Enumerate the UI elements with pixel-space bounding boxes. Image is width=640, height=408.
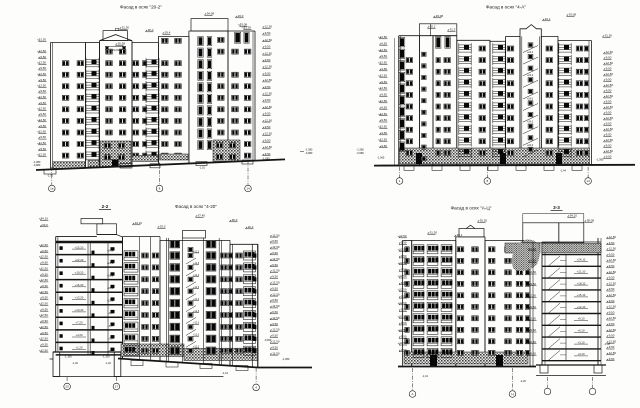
svg-text:+9,50: +9,50 <box>607 322 615 326</box>
svg-text:14: 14 <box>246 187 250 191</box>
svg-text:+9,50: +9,50 <box>607 276 615 280</box>
svg-text:-1,065: -1,065 <box>262 157 270 161</box>
svg-text:+12,50: +12,50 <box>37 153 46 157</box>
svg-text:+12,50: +12,50 <box>39 278 48 282</box>
svg-text:+12,50: +12,50 <box>398 288 407 292</box>
svg-text:+12,50: +12,50 <box>378 112 387 116</box>
svg-text:+24,0: +24,0 <box>527 74 534 77</box>
svg-text:+12,50: +12,50 <box>607 258 616 262</box>
svg-text:+21,10: +21,10 <box>577 270 586 274</box>
svg-text:+0,10: +0,10 <box>577 352 585 356</box>
svg-text:+12,50: +12,50 <box>271 281 280 285</box>
svg-text:+9,50: +9,50 <box>399 348 407 352</box>
svg-text:1в: 1в <box>50 187 54 191</box>
svg-text:+13,20: +13,20 <box>75 296 84 300</box>
svg-text:+9,50: +9,50 <box>604 155 612 159</box>
svg-text:+9,10: +9,10 <box>577 317 585 321</box>
svg-text:+12,50: +12,50 <box>271 233 280 237</box>
svg-text:+9,50: +9,50 <box>380 144 388 148</box>
svg-text:+35,25: +35,25 <box>478 219 487 223</box>
svg-text:+12,50: +12,50 <box>604 50 613 54</box>
svg-text:+9,50: +9,50 <box>271 310 279 314</box>
svg-text:А: А <box>411 392 413 396</box>
svg-text:+12,50: +12,50 <box>37 95 46 99</box>
svg-text:+12,50: +12,50 <box>607 305 616 309</box>
svg-text:+29,4: +29,4 <box>163 31 171 35</box>
svg-text:+31,30: +31,30 <box>603 34 612 38</box>
svg-text:+9,50: +9,50 <box>263 31 271 35</box>
svg-text:3-3: 3-3 <box>553 205 560 210</box>
svg-text:+12,50: +12,50 <box>39 313 48 317</box>
svg-text:-1,44: -1,44 <box>222 371 228 375</box>
svg-text:+9,50: +9,50 <box>39 124 47 128</box>
svg-text:+12,50: +12,50 <box>39 348 48 352</box>
svg-text:+31,3: +31,3 <box>448 28 456 32</box>
svg-text:+33,0: +33,0 <box>236 14 244 18</box>
svg-text:-0,980: -0,980 <box>33 163 41 167</box>
svg-text:+12,50: +12,50 <box>604 116 613 120</box>
svg-text:+12,50: +12,50 <box>39 302 48 306</box>
svg-text:+12,50: +12,50 <box>37 130 46 134</box>
svg-text:+12,50: +12,50 <box>604 149 613 153</box>
svg-text:+9,50: +9,50 <box>380 131 388 135</box>
svg-text:+12,50: +12,50 <box>271 328 280 332</box>
svg-text:+36,0: +36,0 <box>230 218 238 222</box>
svg-text:+30,1: +30,1 <box>455 233 463 237</box>
svg-text:2-2: 2-2 <box>102 204 109 209</box>
svg-text:+9,50: +9,50 <box>39 135 47 139</box>
svg-text:-1,44: -1,44 <box>422 374 428 378</box>
svg-text:+12,50: +12,50 <box>271 304 280 308</box>
svg-text:+24,82: +24,82 <box>111 48 120 52</box>
svg-text:+9,50: +9,50 <box>40 272 48 276</box>
svg-text:+12,50: +12,50 <box>37 118 46 122</box>
svg-text:+6,10: +6,10 <box>577 329 585 333</box>
svg-text:+9,50: +9,50 <box>380 54 388 58</box>
svg-text:+30,2: +30,2 <box>428 25 436 29</box>
svg-text:+12,50: +12,50 <box>398 274 407 278</box>
svg-text:+34,1: +34,1 <box>543 17 551 21</box>
svg-text:-1,44: -1,44 <box>560 169 566 173</box>
svg-text:+9,50: +9,50 <box>399 254 407 258</box>
svg-text:+12,50: +12,50 <box>37 84 46 88</box>
svg-text:+12,50: +12,50 <box>378 99 387 103</box>
svg-text:+19,20: +19,20 <box>75 270 84 274</box>
svg-text:+12,50: +12,50 <box>271 316 280 320</box>
svg-text:+31,30: +31,30 <box>428 231 437 235</box>
svg-text:+9,50: +9,50 <box>604 89 612 93</box>
svg-text:+25,20: +25,20 <box>75 245 84 249</box>
svg-text:+12,50: +12,50 <box>604 138 613 142</box>
svg-text:+12,50: +12,50 <box>607 293 616 297</box>
svg-text:+12,50: +12,50 <box>271 340 280 344</box>
svg-text:-1,40: -1,40 <box>72 361 78 365</box>
svg-text:-1,065: -1,065 <box>377 156 385 160</box>
svg-text:+12,50: +12,50 <box>271 269 280 273</box>
svg-text:+9,50: +9,50 <box>607 241 615 245</box>
svg-text:+12,50: +12,50 <box>398 261 407 265</box>
svg-text:+9,50: +9,50 <box>529 282 537 286</box>
svg-text:+30,0: +30,0 <box>146 28 154 32</box>
svg-text:Фасад в осях "4-А": Фасад в осях "4-А" <box>486 5 526 10</box>
svg-text:+12,50: +12,50 <box>39 325 48 329</box>
svg-text:+12,50: +12,50 <box>604 83 613 87</box>
svg-text:+9,50: +9,50 <box>604 133 612 137</box>
svg-text:+9,50: +9,50 <box>380 41 388 45</box>
svg-text:14: 14 <box>586 179 590 183</box>
svg-text:+9,50: +9,50 <box>607 287 615 291</box>
svg-text:Фасад в осях "4-20": Фасад в осях "4-20" <box>175 204 217 209</box>
svg-text:-0,950: -0,950 <box>264 338 272 342</box>
svg-text:+9,50: +9,50 <box>380 105 388 109</box>
svg-text:+12,50: +12,50 <box>604 105 613 109</box>
svg-text:+12,50: +12,50 <box>607 270 616 274</box>
svg-text:+12,50: +12,50 <box>39 290 48 294</box>
svg-text:+9,50: +9,50 <box>399 268 407 272</box>
svg-text:+12,50: +12,50 <box>607 351 616 355</box>
svg-text:+12,50: +12,50 <box>271 351 280 355</box>
svg-text:+12,50: +12,50 <box>37 72 46 76</box>
svg-text:+12,50: +12,50 <box>263 51 272 55</box>
svg-text:+38,08: +38,08 <box>585 219 594 223</box>
svg-text:+31,30: +31,30 <box>120 26 129 30</box>
svg-text:+9,50: +9,50 <box>604 67 612 71</box>
svg-text:+12,50: +12,50 <box>604 61 613 65</box>
svg-text:+24,0: +24,0 <box>527 51 534 54</box>
svg-text:+9,50: +9,50 <box>604 56 612 60</box>
svg-text:+9,50: +9,50 <box>604 111 612 115</box>
svg-text:+9,50: +9,50 <box>271 286 279 290</box>
svg-text:-2,20: -2,20 <box>520 379 526 383</box>
svg-text:+12,50: +12,50 <box>39 243 48 247</box>
svg-text:+12,50: +12,50 <box>607 247 616 251</box>
svg-text:+31,30: +31,30 <box>242 26 251 30</box>
svg-text:+33,0: +33,0 <box>40 223 48 227</box>
svg-text:+12,50: +12,50 <box>398 301 407 305</box>
svg-text:+12,50: +12,50 <box>527 317 536 321</box>
svg-text:+12,50: +12,50 <box>378 73 387 77</box>
svg-text:+26,58: +26,58 <box>116 42 125 46</box>
svg-text:+9,50: +9,50 <box>529 259 537 263</box>
svg-text:+12,50: +12,50 <box>604 94 613 98</box>
svg-text:-1,70: -1,70 <box>47 174 54 178</box>
svg-text:17: 17 <box>115 385 119 389</box>
svg-text:+9,50: +9,50 <box>40 343 48 347</box>
svg-text:+12,50: +12,50 <box>39 266 48 270</box>
svg-text:+12,50: +12,50 <box>607 235 616 239</box>
svg-text:+12,50: +12,50 <box>271 245 280 249</box>
svg-text:+12,50: +12,50 <box>263 25 272 29</box>
svg-text:+9,50: +9,50 <box>40 296 48 300</box>
svg-text:+9,50: +9,50 <box>40 261 48 265</box>
svg-text:+9,50: +9,50 <box>380 67 388 71</box>
svg-text:+9,50: +9,50 <box>399 335 407 339</box>
svg-text:+9,50: +9,50 <box>604 144 612 148</box>
svg-text:+24,0: +24,0 <box>527 121 534 124</box>
svg-text:+12,50: +12,50 <box>607 316 616 320</box>
svg-text:+9,50: +9,50 <box>271 334 279 338</box>
svg-text:+9,50: +9,50 <box>271 263 279 267</box>
svg-text:+9,50: +9,50 <box>263 138 271 142</box>
svg-text:+12,50: +12,50 <box>378 35 387 39</box>
svg-text:+9,50: +9,50 <box>40 319 48 323</box>
svg-text:+33,08: +33,08 <box>567 13 576 17</box>
svg-text:+12,50: +12,50 <box>37 141 46 145</box>
svg-text:+12,50: +12,50 <box>378 137 387 141</box>
svg-text:+12,50: +12,50 <box>271 257 280 261</box>
svg-text:+9,50: +9,50 <box>39 78 47 82</box>
svg-text:+9,50: +9,50 <box>40 307 48 311</box>
svg-text:+9,50: +9,50 <box>271 251 279 255</box>
svg-text:+34,08: +34,08 <box>205 12 214 16</box>
svg-text:+32,2: +32,2 <box>246 225 254 229</box>
svg-text:+9,50: +9,50 <box>529 305 537 309</box>
svg-text:+9,50: +9,50 <box>40 249 48 253</box>
svg-text:+9,50: +9,50 <box>39 55 47 59</box>
svg-text:+9,50: +9,50 <box>399 321 407 325</box>
svg-text:-1,380: -1,380 <box>356 148 364 152</box>
svg-text:+1,20: +1,20 <box>75 346 83 350</box>
svg-text:+12,50: +12,50 <box>604 127 613 131</box>
svg-text:+9,50: +9,50 <box>380 118 388 122</box>
svg-text:+24,0: +24,0 <box>527 144 534 147</box>
svg-text:+22,20: +22,20 <box>75 258 84 262</box>
svg-text:+12,50: +12,50 <box>607 328 616 332</box>
svg-text:+12,50: +12,50 <box>398 341 407 345</box>
svg-text:+37,45: +37,45 <box>196 214 205 218</box>
svg-text:+9,50: +9,50 <box>39 66 47 70</box>
svg-text:-1,01: -1,01 <box>199 166 206 170</box>
svg-text:+9,50: +9,50 <box>40 284 48 288</box>
svg-text:+9,50: +9,50 <box>399 294 407 298</box>
svg-text:+12,50: +12,50 <box>398 328 407 332</box>
svg-text:+9,50: +9,50 <box>39 89 47 93</box>
svg-text:+12,10: +12,10 <box>577 305 586 309</box>
svg-text:-1,100: -1,100 <box>102 355 110 359</box>
svg-text:20: 20 <box>65 385 69 389</box>
svg-text:+12,50: +12,50 <box>263 92 272 96</box>
svg-text:+12,50: +12,50 <box>271 292 280 296</box>
svg-text:+9,50: +9,50 <box>271 322 279 326</box>
svg-text:+9,50: +9,50 <box>271 298 279 302</box>
svg-text:+12,50: +12,50 <box>263 118 272 122</box>
svg-text:+15,10: +15,10 <box>577 293 586 297</box>
svg-text:+24,0: +24,0 <box>527 97 534 100</box>
svg-text:+34,10: +34,10 <box>133 221 142 225</box>
svg-text:-1,38: -1,38 <box>604 342 610 346</box>
svg-text:+12,50: +12,50 <box>263 105 272 109</box>
svg-text:+12,50: +12,50 <box>527 340 536 344</box>
svg-text:+31,30: +31,30 <box>37 38 46 42</box>
svg-text:+12,50: +12,50 <box>378 61 387 65</box>
svg-text:-1,380: -1,380 <box>596 157 604 161</box>
svg-text:-1,40: -1,40 <box>105 361 111 365</box>
svg-text:Фасад в осях "А-Ц": Фасад в осях "А-Ц" <box>451 206 492 211</box>
svg-text:+34,10: +34,10 <box>39 217 48 221</box>
svg-text:+9,50: +9,50 <box>380 93 388 97</box>
svg-text:+9,50: +9,50 <box>263 152 271 156</box>
svg-text:+9,50: +9,50 <box>263 58 271 62</box>
svg-text:+12,50: +12,50 <box>39 255 48 259</box>
svg-text:+9,50: +9,50 <box>380 80 388 84</box>
svg-text:+9,50: +9,50 <box>263 125 271 129</box>
svg-text:+9,50: +9,50 <box>607 357 615 361</box>
svg-text:+12,50: +12,50 <box>527 270 536 274</box>
svg-text:+9,50: +9,50 <box>399 241 407 245</box>
svg-text:+12,50: +12,50 <box>604 72 613 76</box>
svg-text:Фасад в осях "20-2": Фасад в осях "20-2" <box>120 5 162 10</box>
svg-text:+12,50: +12,50 <box>607 281 616 285</box>
svg-text:+9,50: +9,50 <box>529 351 537 355</box>
svg-text:+9,50: +9,50 <box>607 310 615 314</box>
svg-text:+9,50: +9,50 <box>40 331 48 335</box>
svg-text:+12,50: +12,50 <box>378 125 387 129</box>
svg-text:+9,50: +9,50 <box>271 275 279 279</box>
svg-text:+9,50: +9,50 <box>39 101 47 105</box>
svg-text:+9,50: +9,50 <box>604 78 612 82</box>
svg-text:+12,50: +12,50 <box>378 86 387 90</box>
svg-text:+12,50: +12,50 <box>37 61 46 65</box>
svg-text:+9,50: +9,50 <box>607 264 615 268</box>
svg-text:+33,08: +33,08 <box>434 14 443 18</box>
svg-text:-1,100: -1,100 <box>64 355 72 359</box>
svg-text:+9,50: +9,50 <box>607 334 615 338</box>
svg-text:+12,50: +12,50 <box>37 107 46 111</box>
svg-text:-1,380: -1,380 <box>305 148 313 152</box>
svg-text:+24,10: +24,10 <box>577 258 586 262</box>
svg-text:+12,50: +12,50 <box>263 38 272 42</box>
svg-text:+12,50: +12,50 <box>398 314 407 318</box>
svg-text:+12,50: +12,50 <box>37 49 46 53</box>
svg-text:+9,50: +9,50 <box>271 239 279 243</box>
svg-text:+12,50: +12,50 <box>527 293 536 297</box>
svg-text:+9,50: +9,50 <box>399 308 407 312</box>
svg-text:+12,50: +12,50 <box>378 48 387 52</box>
svg-text:-1,380: -1,380 <box>282 357 290 361</box>
svg-text:-0,980: -0,980 <box>356 151 364 155</box>
svg-text:+9,50: +9,50 <box>604 122 612 126</box>
svg-text:-0,980: -0,980 <box>305 151 313 155</box>
svg-text:+9,50: +9,50 <box>39 147 47 151</box>
svg-text:+9,50: +9,50 <box>607 299 615 303</box>
svg-text:+16,20: +16,20 <box>75 283 84 287</box>
svg-text:+9,50: +9,50 <box>263 45 271 49</box>
svg-text:+7,20: +7,20 <box>75 321 83 325</box>
svg-text:+33,0: +33,0 <box>158 225 166 229</box>
svg-text:+12,50: +12,50 <box>263 132 272 136</box>
svg-text:+12,50: +12,50 <box>263 65 272 69</box>
svg-text:+12,50: +12,50 <box>263 145 272 149</box>
svg-text:+12,50: +12,50 <box>398 247 407 251</box>
svg-text:+9,50: +9,50 <box>604 100 612 104</box>
svg-text:+9,50: +9,50 <box>271 345 279 349</box>
svg-text:+34,10: +34,10 <box>568 214 577 218</box>
svg-text:+9,50: +9,50 <box>263 71 271 75</box>
svg-text:+3,10: +3,10 <box>577 340 585 344</box>
svg-text:+9,50: +9,50 <box>399 281 407 285</box>
svg-text:+18,10: +18,10 <box>577 281 586 285</box>
svg-text:+9,50: +9,50 <box>607 252 615 256</box>
svg-text:+9,50: +9,50 <box>263 98 271 102</box>
svg-text:+4,20: +4,20 <box>75 333 83 337</box>
svg-text:+9,50: +9,50 <box>263 112 271 116</box>
svg-text:+9,50: +9,50 <box>263 85 271 89</box>
svg-text:+10,20: +10,20 <box>75 308 84 312</box>
svg-text:+12,50: +12,50 <box>263 78 272 82</box>
svg-text:+12,50: +12,50 <box>527 247 536 251</box>
svg-text:+9,50: +9,50 <box>39 112 47 116</box>
svg-text:+12,50: +12,50 <box>398 234 407 238</box>
svg-text:+9,50: +9,50 <box>529 328 537 332</box>
svg-text:+12,50: +12,50 <box>39 337 48 341</box>
